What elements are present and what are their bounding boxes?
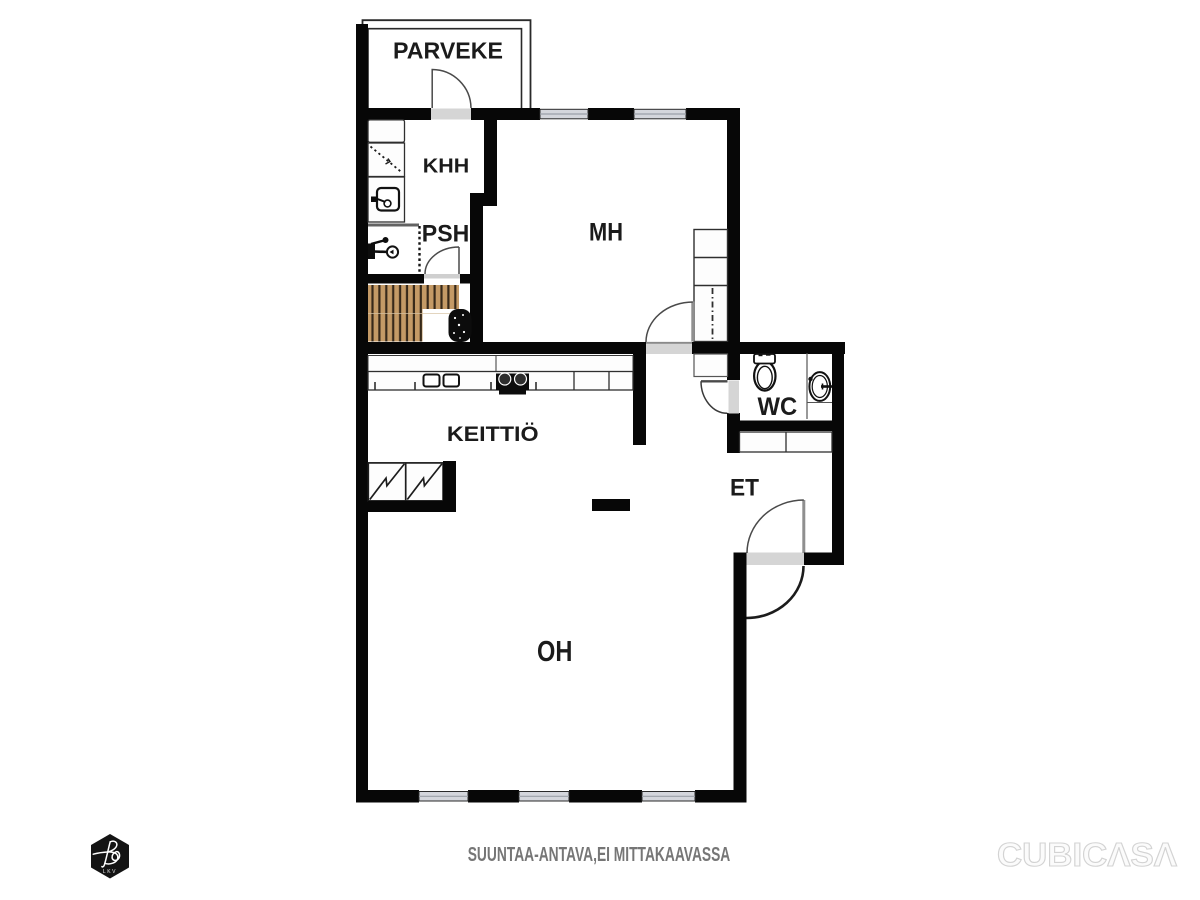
svg-text:KEITTIÖ: KEITTIÖ xyxy=(447,421,539,446)
svg-text:ET: ET xyxy=(730,475,759,502)
svg-text:PSH: PSH xyxy=(422,220,470,247)
svg-text:OH: OH xyxy=(537,636,572,668)
svg-text:WC: WC xyxy=(758,393,798,421)
svg-text:LKV: LKV xyxy=(103,869,117,875)
svg-text:SUUNTAA-ANTAVA,EI MITTAKAAVASS: SUUNTAA-ANTAVA,EI MITTAKAAVASSA xyxy=(468,842,731,865)
svg-text:PARVEKE: PARVEKE xyxy=(393,38,503,64)
svg-text:MH: MH xyxy=(589,218,623,246)
svg-text:KHH: KHH xyxy=(423,155,469,178)
svg-text:CUBICΛSΛ: CUBICΛSΛ xyxy=(997,836,1177,873)
